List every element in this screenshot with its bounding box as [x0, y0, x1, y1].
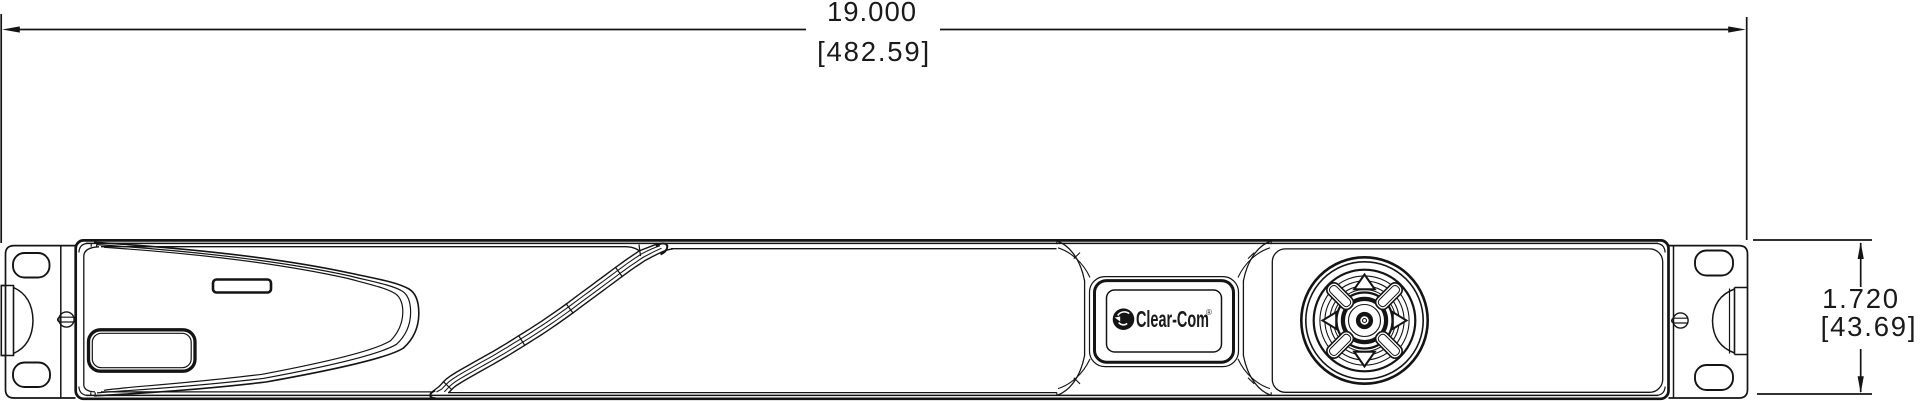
svg-text:[43.69]: [43.69]: [1821, 311, 1918, 342]
svg-text:Clear-Com: Clear-Com: [1136, 306, 1209, 332]
svg-text:1.720: 1.720: [1822, 283, 1900, 314]
svg-text:®: ®: [1206, 308, 1212, 317]
svg-text:[482.59]: [482.59]: [817, 36, 931, 67]
svg-text:19.000: 19.000: [827, 0, 917, 27]
